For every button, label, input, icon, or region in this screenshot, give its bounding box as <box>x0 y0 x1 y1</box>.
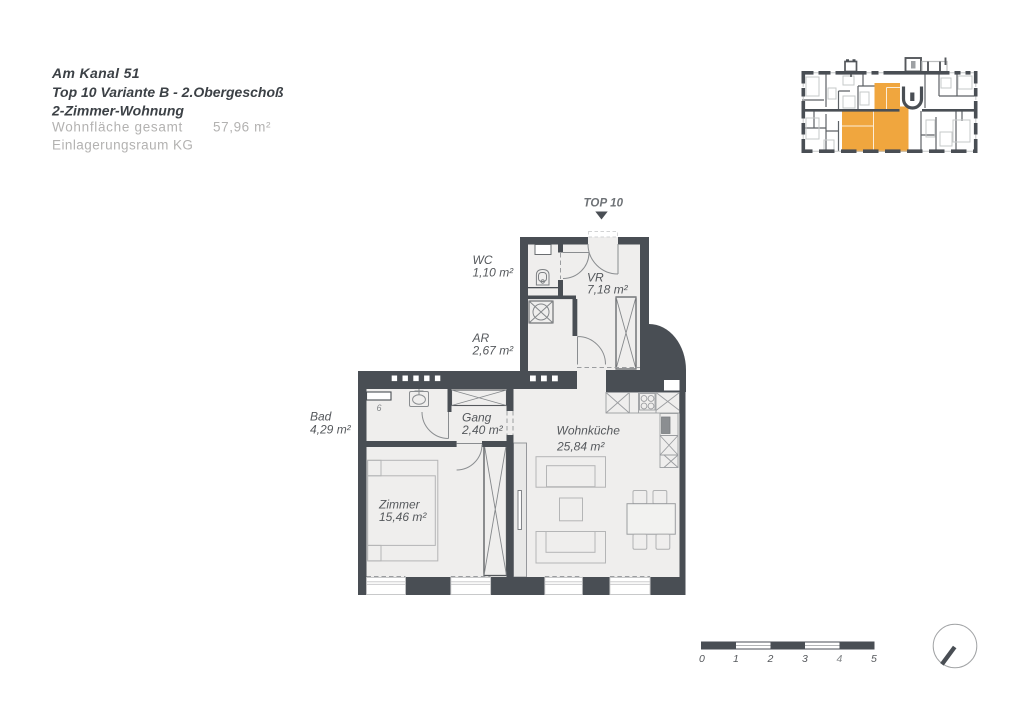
svg-text:6: 6 <box>377 403 382 413</box>
svg-text:2: 2 <box>767 653 774 665</box>
svg-text:Bad: Bad <box>310 410 332 424</box>
svg-text:2-Zimmer-Wohnung: 2-Zimmer-Wohnung <box>51 103 184 119</box>
svg-text:1: 1 <box>733 653 739 665</box>
svg-text:Wohnfläche gesamt: Wohnfläche gesamt <box>52 120 183 135</box>
svg-text:15,46 m²: 15,46 m² <box>379 510 427 524</box>
svg-text:Am Kanal 51: Am Kanal 51 <box>51 65 140 81</box>
svg-text:Wohnküche: Wohnküche <box>557 424 621 438</box>
svg-text:3: 3 <box>802 653 808 665</box>
svg-text:2,67 m²: 2,67 m² <box>472 344 515 358</box>
svg-text:4: 4 <box>837 653 843 665</box>
svg-text:Einlagerungsraum KG: Einlagerungsraum KG <box>52 138 193 153</box>
svg-text:5: 5 <box>871 653 877 665</box>
svg-text:0: 0 <box>699 653 705 665</box>
svg-text:2,40 m²: 2,40 m² <box>461 423 504 437</box>
svg-text:57,96 m²: 57,96 m² <box>213 120 271 135</box>
svg-text:Top 10 Variante B - 2.Obergesc: Top 10 Variante B - 2.Obergeschoß <box>52 84 284 100</box>
svg-text:1,10 m²: 1,10 m² <box>473 266 515 280</box>
svg-text:25,84 m²: 25,84 m² <box>556 440 605 454</box>
svg-text:4,29 m²: 4,29 m² <box>310 423 352 437</box>
svg-text:TOP 10: TOP 10 <box>584 198 624 210</box>
svg-text:7,18 m²: 7,18 m² <box>587 283 629 297</box>
